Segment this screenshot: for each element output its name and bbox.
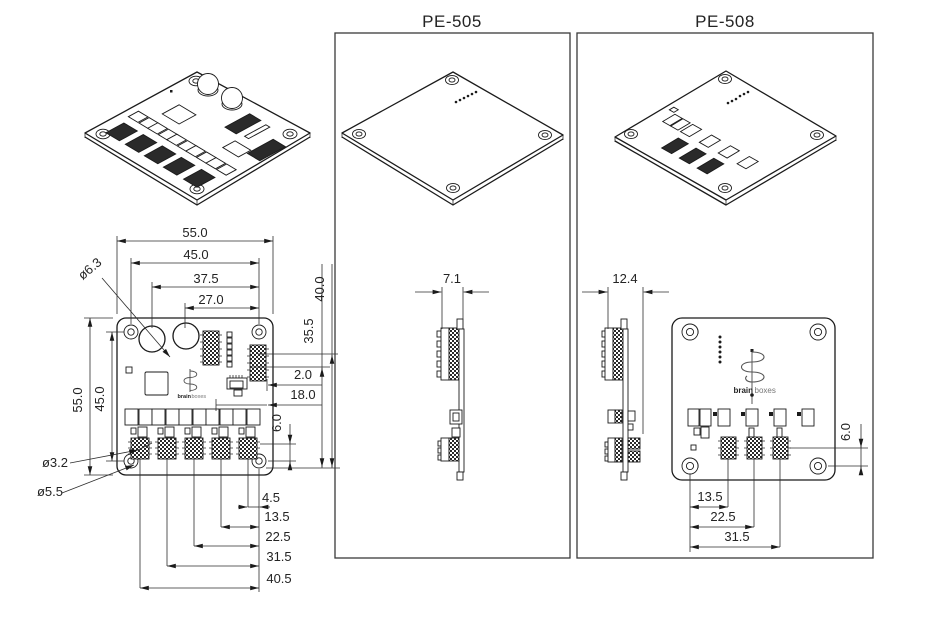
dim-left-group: 55.0 45.0: [70, 318, 124, 475]
dim-27-0: 27.0: [198, 292, 223, 307]
iso-view-populated-board: [85, 72, 310, 205]
dim-pad-diameter: ø5.5: [37, 484, 63, 499]
main-top-view: brain boxes 55.0 45.0 37.5 27.0: [37, 225, 340, 592]
engineering-drawing: brain boxes 55.0 45.0 37.5 27.0: [0, 0, 938, 617]
pe505-dim-7-1: 7.1: [443, 271, 461, 286]
pe508-pin-blocks: [718, 437, 791, 459]
dim-chain-13-5: 13.5: [264, 509, 289, 524]
pe505-panel: PE-505: [335, 12, 570, 558]
dim-hole-span-y: 45.0: [92, 386, 107, 411]
pe505-side-view: [437, 319, 464, 480]
drawing-sheet: brain boxes 55.0 45.0 37.5 27.0: [0, 0, 938, 617]
dim-board-height: 55.0: [70, 387, 85, 412]
dim-hole-span-x: 45.0: [183, 247, 208, 262]
logo-boxes-text: boxes: [192, 394, 207, 400]
pe508-bottom-view: brain boxes: [672, 318, 835, 480]
dim-chain-4-5: 4.5: [262, 490, 280, 505]
logo-boxes-text-large: boxes: [755, 386, 776, 395]
pe508-iso-view: [615, 71, 836, 205]
dim-18-0: 18.0: [290, 387, 315, 402]
dim-2-0: 2.0: [294, 367, 312, 382]
dim-40-0: 40.0: [312, 276, 327, 301]
pe508-dim-22-5: 22.5: [710, 509, 735, 524]
pe505-dim-side-width: 7.1: [415, 271, 489, 329]
pe508-panel: PE-508: [577, 12, 873, 558]
main-chip: [145, 372, 168, 395]
dim-chain-31-5: 31.5: [266, 549, 291, 564]
dim-37-5: 37.5: [193, 271, 218, 286]
pe505-iso-view: [342, 72, 563, 205]
pe508-dim-13-5: 13.5: [697, 489, 722, 504]
dim-35-5: 35.5: [301, 318, 316, 343]
dim-chain-40-5: 40.5: [266, 571, 291, 586]
pe508-dim-6-0-label: 6.0: [838, 423, 853, 441]
dim-top-group: 55.0 45.0 37.5 27.0: [117, 225, 273, 328]
pe508-dim-12-4: 12.4: [612, 271, 637, 286]
pe508-dim-31-5: 31.5: [724, 529, 749, 544]
logo-brain-text-large: brain: [733, 386, 753, 395]
logo-brain-text: brain: [178, 394, 192, 400]
dim-board-width: 55.0: [182, 225, 207, 240]
dim-cap-diameter: ø6.3: [75, 255, 105, 283]
pe508-side-view: [602, 319, 640, 480]
dim-chain-22-5: 22.5: [265, 529, 290, 544]
dim-hole-diameter: ø3.2: [42, 455, 68, 470]
pe505-title: PE-505: [422, 12, 482, 31]
dim-6-0-main: 6.0: [269, 414, 284, 432]
dim-bottom-chain: 4.5 13.5 22.5 31.5 40.5: [140, 459, 292, 592]
pe508-title: PE-508: [695, 12, 755, 31]
